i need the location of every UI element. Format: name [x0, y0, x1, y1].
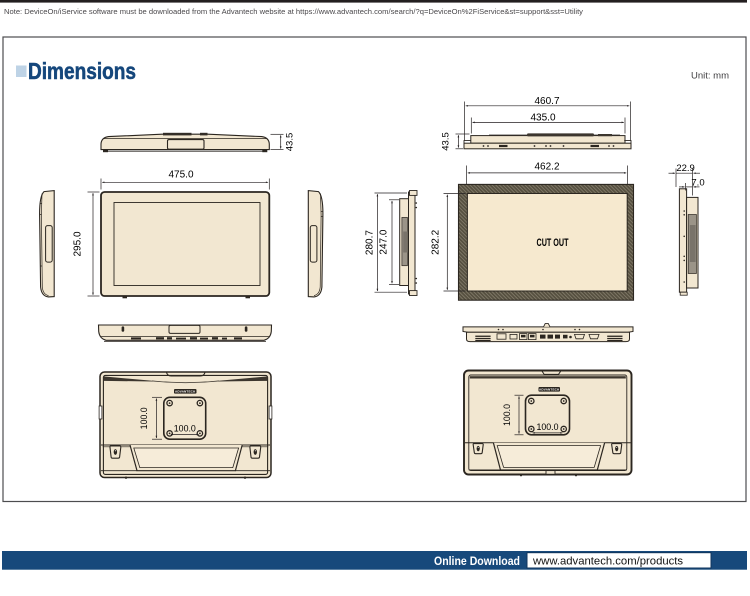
- svg-text:460.7: 460.7: [534, 96, 559, 107]
- svg-text:22.9: 22.9: [676, 163, 695, 174]
- svg-text:Online Download: Online Download: [434, 556, 520, 568]
- svg-text:43.5: 43.5: [441, 132, 452, 151]
- svg-text:www.advantech.com/products: www.advantech.com/products: [532, 556, 683, 568]
- svg-text:280.7: 280.7: [365, 230, 376, 255]
- svg-text:100.0: 100.0: [174, 423, 196, 433]
- svg-text:462.2: 462.2: [534, 162, 559, 173]
- svg-text:475.0: 475.0: [168, 170, 193, 181]
- svg-text:Unit: mm: Unit: mm: [691, 71, 729, 82]
- svg-text:247.0: 247.0: [379, 229, 390, 254]
- svg-text:295.0: 295.0: [73, 231, 84, 256]
- svg-text:100.0: 100.0: [139, 407, 149, 429]
- svg-text:Note: DeviceOn/iService softwa: Note: DeviceOn/iService software must be…: [4, 7, 583, 16]
- svg-text:100.0: 100.0: [536, 422, 558, 432]
- svg-text:43.5: 43.5: [285, 133, 296, 152]
- svg-text:ADVANTECH: ADVANTECH: [175, 390, 195, 394]
- svg-text:282.2: 282.2: [430, 229, 441, 254]
- svg-text:CUT OUT: CUT OUT: [537, 237, 569, 249]
- svg-text:ADVANTECH: ADVANTECH: [539, 388, 559, 392]
- svg-text:435.0: 435.0: [530, 113, 555, 124]
- svg-text:Dimensions: Dimensions: [28, 58, 136, 84]
- svg-text:100.0: 100.0: [502, 404, 512, 426]
